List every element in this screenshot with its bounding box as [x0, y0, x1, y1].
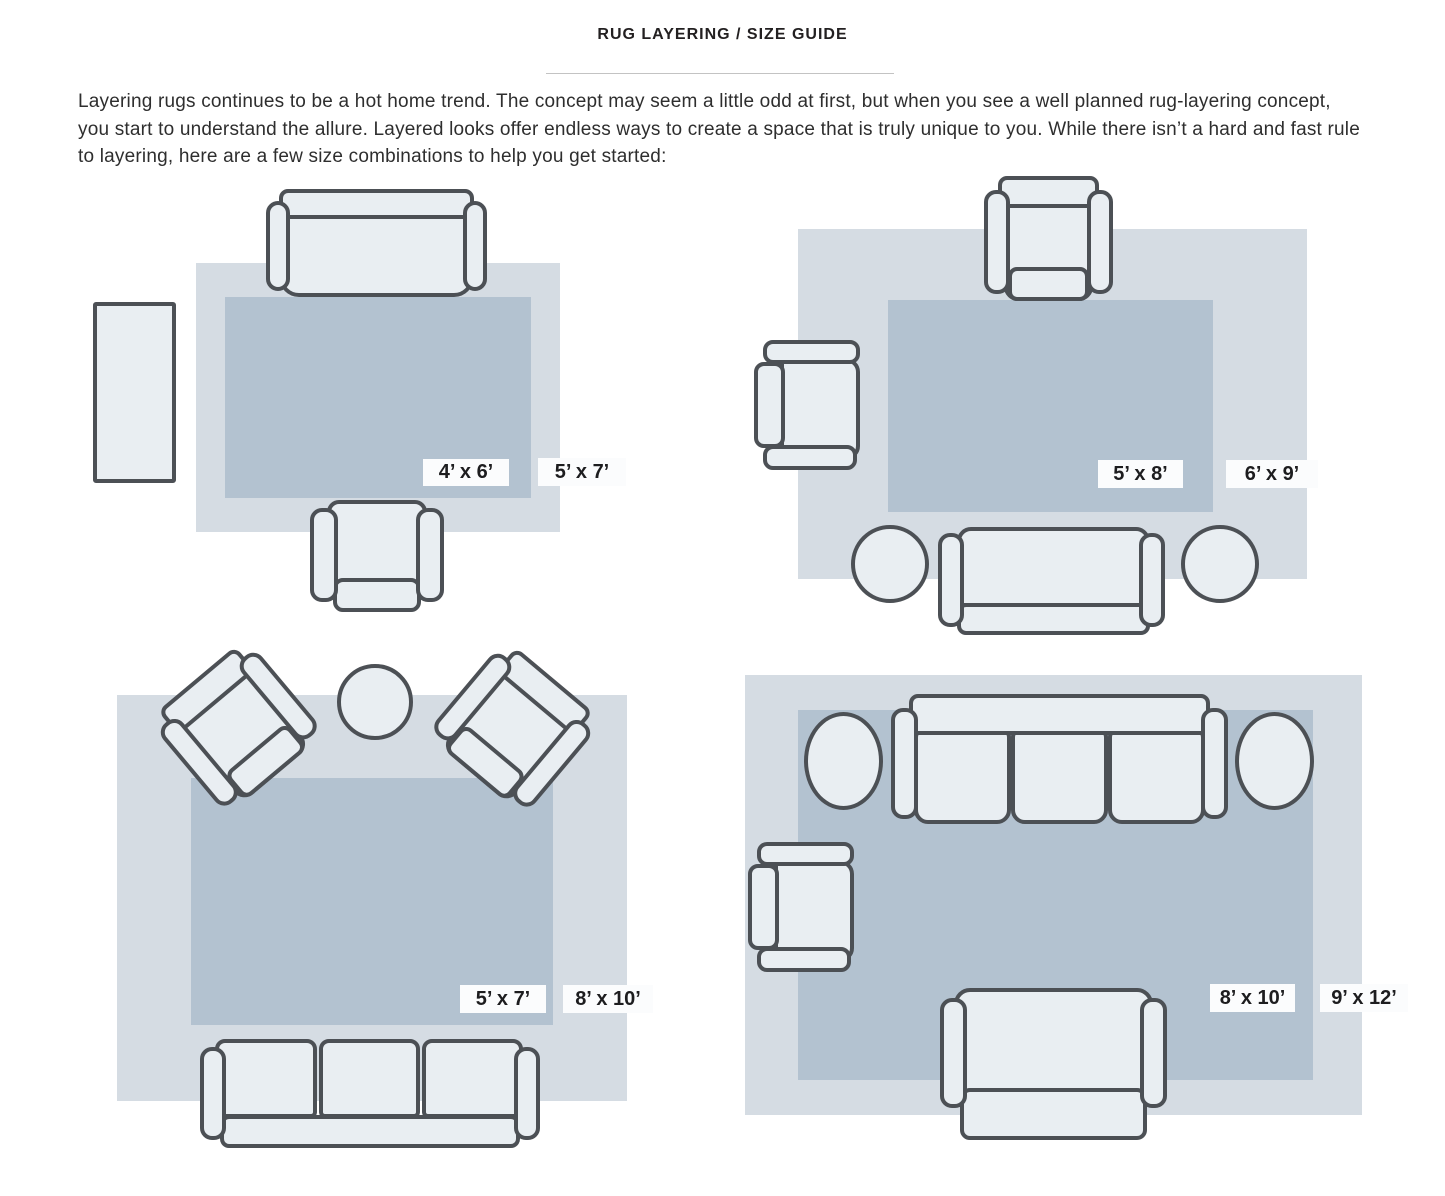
sofa-arm-right — [1139, 533, 1165, 627]
outer-rug-size-label: 9’ x 12’ — [1320, 984, 1408, 1012]
page-title: RUG LAYERING / SIZE GUIDE — [0, 26, 1445, 44]
round-table — [851, 525, 929, 603]
loveseat-arm-right — [1140, 998, 1167, 1108]
armchair-arm-bottom — [757, 947, 851, 972]
three-seat-sofa-top-view — [200, 1035, 540, 1148]
outer-rug-size-label: 6’ x 9’ — [1226, 460, 1318, 488]
inner-rug-size-label: 5’ x 7’ — [460, 985, 546, 1013]
armchair-back — [998, 176, 1099, 208]
loveseat-arm-left — [940, 998, 967, 1108]
armchair-arm-left — [310, 508, 338, 602]
sofa-back — [957, 603, 1150, 635]
intro-paragraph: Layering rugs continues to be a hot home… — [78, 88, 1363, 171]
sofa-cushion — [319, 1039, 420, 1118]
sofa-top-view — [266, 189, 487, 297]
sofa-cushion — [422, 1039, 523, 1118]
armchair-arm-right — [416, 508, 444, 602]
sofa-cushion — [1011, 729, 1108, 824]
armchair-top-view — [748, 842, 854, 972]
sofa-arm-left — [938, 533, 964, 627]
loveseat-back — [960, 1088, 1147, 1140]
sofa-arm-left — [266, 201, 290, 291]
armchair-back — [748, 864, 779, 950]
round-table — [804, 712, 883, 810]
inner-rug-size-label: 8’ x 10’ — [1210, 984, 1295, 1012]
sofa-back — [220, 1115, 520, 1148]
sofa-seat — [279, 213, 474, 297]
armchair-top-view — [310, 498, 444, 612]
armchair-back — [754, 362, 785, 448]
sofa-cushion — [1108, 729, 1205, 824]
armchair-top-view — [754, 340, 860, 470]
armchair-back — [333, 578, 421, 612]
sofa-back — [909, 694, 1210, 735]
three-seat-sofa-top-view — [891, 694, 1228, 824]
round-table — [337, 664, 413, 740]
sofa-top-view — [938, 527, 1165, 635]
armchair-arm-left — [984, 190, 1010, 294]
sofa-arm-right — [463, 201, 487, 291]
rug-size-guide-page: RUG LAYERING / SIZE GUIDE Layering rugs … — [0, 0, 1445, 1196]
inner-rug-size-label: 5’ x 8’ — [1098, 460, 1183, 488]
side-table — [93, 302, 176, 483]
loveseat-top-view — [940, 988, 1167, 1140]
outer-rug-size-label: 8’ x 10’ — [563, 985, 653, 1013]
armchair-arm-right — [1087, 190, 1113, 294]
title-divider — [546, 73, 894, 74]
inner-rug-size-label: 4’ x 6’ — [423, 459, 509, 486]
armchair-arm-bottom — [763, 445, 857, 470]
armchair-arm-top — [757, 842, 854, 866]
armchair-front-cushion — [1008, 267, 1089, 301]
round-table — [1235, 712, 1314, 810]
sofa-arm-left — [891, 708, 918, 819]
loveseat-seat — [954, 988, 1153, 1094]
armchair-top-view — [984, 176, 1113, 301]
sofa-arm-right — [514, 1047, 540, 1140]
sofa-back — [279, 189, 474, 219]
sofa-cushion — [914, 729, 1011, 824]
armchair-arm-top — [763, 340, 860, 364]
sofa-arm-left — [200, 1047, 226, 1140]
outer-rug-size-label: 5’ x 7’ — [538, 458, 626, 486]
sofa-seat — [957, 527, 1150, 607]
round-table — [1181, 525, 1259, 603]
sofa-arm-right — [1201, 708, 1228, 819]
sofa-cushion — [215, 1039, 317, 1118]
